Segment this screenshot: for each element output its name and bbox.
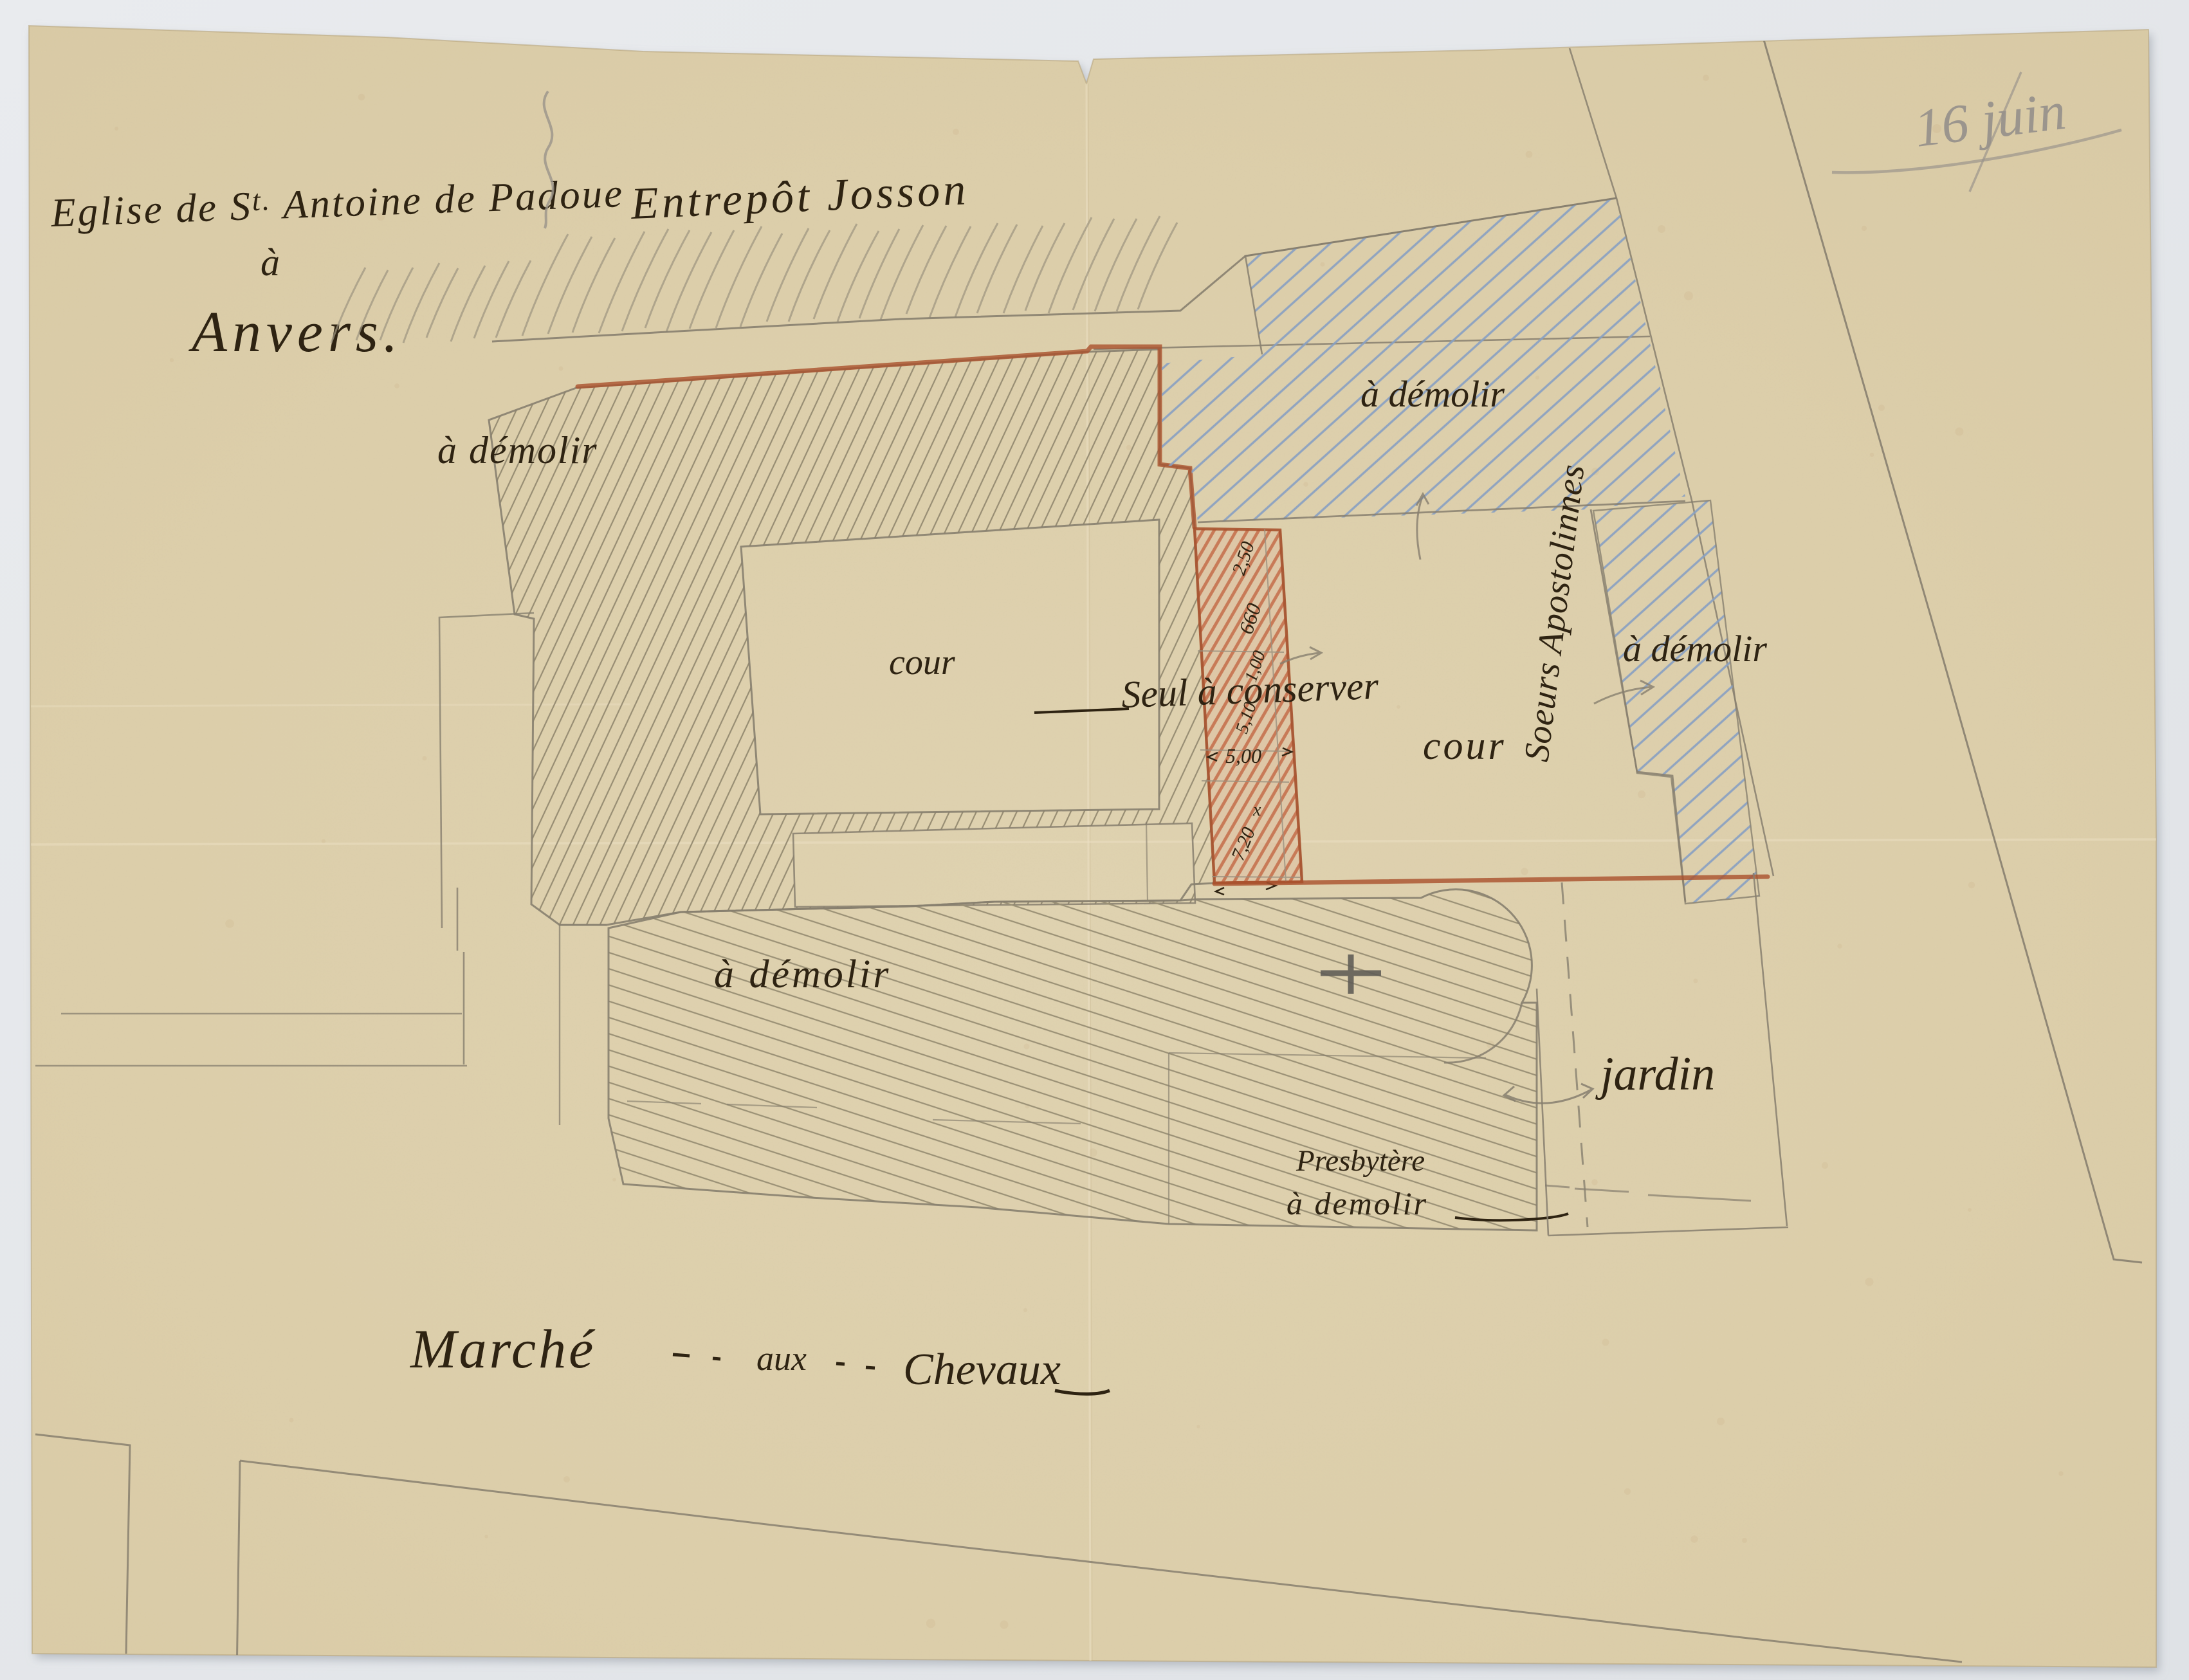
svg-text:Presbytère: Presbytère (1296, 1144, 1425, 1178)
svg-text:5,00: 5,00 (1225, 744, 1261, 767)
svg-text:à demolir: à demolir (1287, 1185, 1428, 1221)
svg-text:à: à (261, 241, 280, 284)
svg-text:Anvers.: Anvers. (188, 300, 403, 364)
svg-text:à démolir: à démolir (437, 429, 598, 471)
svg-text:Chevaux: Chevaux (903, 1345, 1061, 1394)
svg-text:à démolir: à démolir (1360, 373, 1505, 415)
svg-text:Marché: Marché (409, 1318, 596, 1380)
svg-text:Seul à conserver: Seul à conserver (1121, 664, 1380, 716)
svg-text:jardin: jardin (1595, 1048, 1715, 1100)
svg-text:à démolir: à démolir (1623, 628, 1767, 670)
svg-text:à démolir: à démolir (714, 953, 891, 996)
svg-text:cour: cour (889, 643, 955, 682)
svg-text:cour: cour (1423, 724, 1507, 768)
svg-text:x: x (1252, 800, 1261, 820)
svg-text:aux: aux (756, 1339, 807, 1378)
